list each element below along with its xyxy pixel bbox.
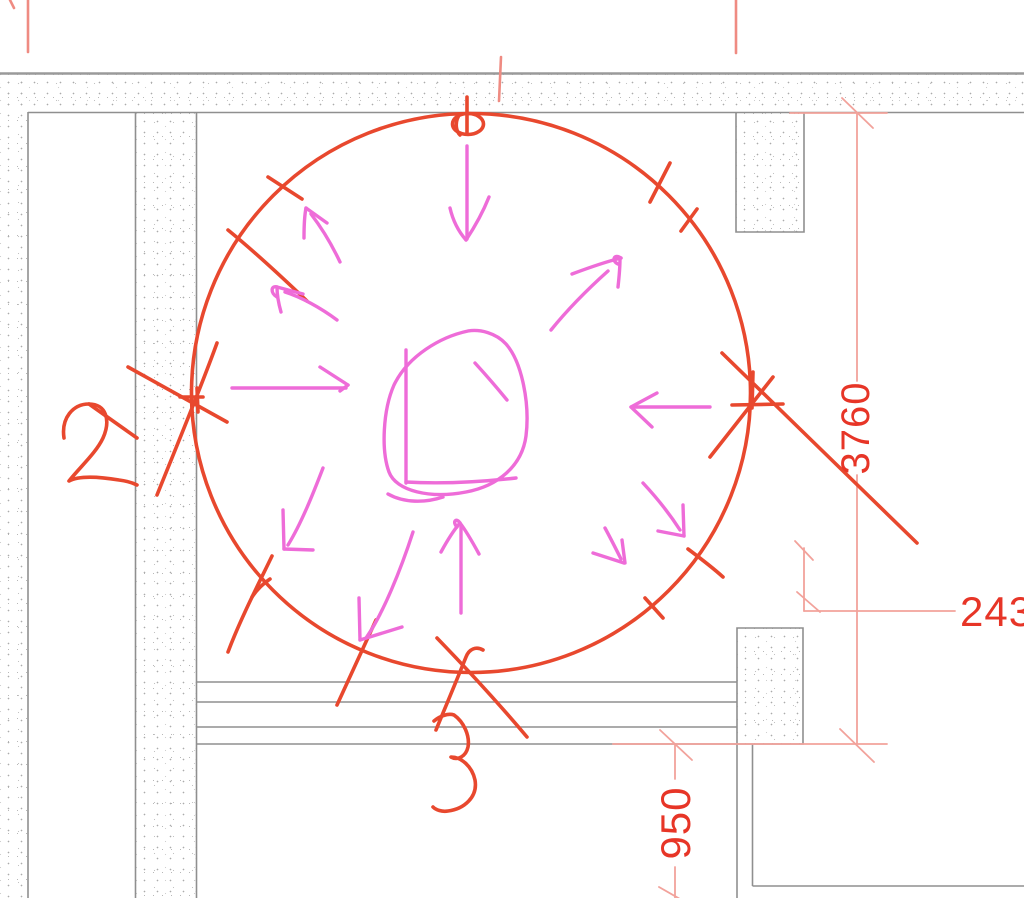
pier-bottom-right-outline <box>737 628 803 744</box>
sketch-diagonal-by-2[interactable] <box>89 404 137 438</box>
pink-arrow-bottom-up[interactable] <box>441 520 479 613</box>
sketch-x-mark-right[interactable] <box>710 353 917 543</box>
dim-top-leader-center <box>499 57 501 101</box>
sketch-x-mark-bottom[interactable] <box>436 638 527 737</box>
dimension-value-243: 243 <box>960 590 1024 634</box>
pier-top-right-outline <box>736 113 804 232</box>
pink-arrow-northeast[interactable] <box>551 256 621 330</box>
pink-arrow-southwest-2[interactable] <box>359 532 413 640</box>
sketch-phi-symbol[interactable] <box>453 97 484 135</box>
sketch-x-mark-left[interactable] <box>128 343 227 495</box>
pink-arrow-top-down[interactable] <box>450 146 489 240</box>
dimension-extension-top <box>10 0 736 101</box>
sketch-tick-lower-left[interactable] <box>228 556 272 652</box>
pink-arrow-left-inward[interactable] <box>232 367 348 391</box>
red-sketch-markup[interactable] <box>64 97 917 811</box>
dimension-value-top: 1240 <box>334 0 431 6</box>
pink-center-blob[interactable] <box>384 331 527 502</box>
pink-arrow-southeast-small[interactable] <box>593 528 625 563</box>
floor-plan-viewport[interactable]: 1240 3760 243 950 <box>0 0 1024 898</box>
dim-950-tick-top <box>660 730 692 760</box>
dim-243-tick-lower <box>797 592 820 612</box>
dimension-text-top-clipped: 1240 <box>328 0 458 9</box>
pink-arrow-southeast-large[interactable] <box>643 483 684 536</box>
pink-arrow-upper-left-1[interactable] <box>304 208 340 262</box>
dim-950-tick-bottom <box>659 887 680 898</box>
dimension-value-3760: 3760 <box>834 368 878 488</box>
sketch-number-3[interactable] <box>433 714 475 811</box>
pink-arrow-southwest-1[interactable] <box>283 468 323 550</box>
dimension-value-950: 950 <box>654 763 698 883</box>
pink-arrow-right-inward[interactable] <box>631 393 710 427</box>
sketch-circle[interactable] <box>192 114 751 673</box>
pink-sketch-markup[interactable] <box>232 146 710 640</box>
sketch-number-2[interactable] <box>64 404 137 485</box>
pink-arrow-upper-left-2[interactable] <box>272 287 337 320</box>
dim-top-tick-far-left <box>10 0 14 8</box>
